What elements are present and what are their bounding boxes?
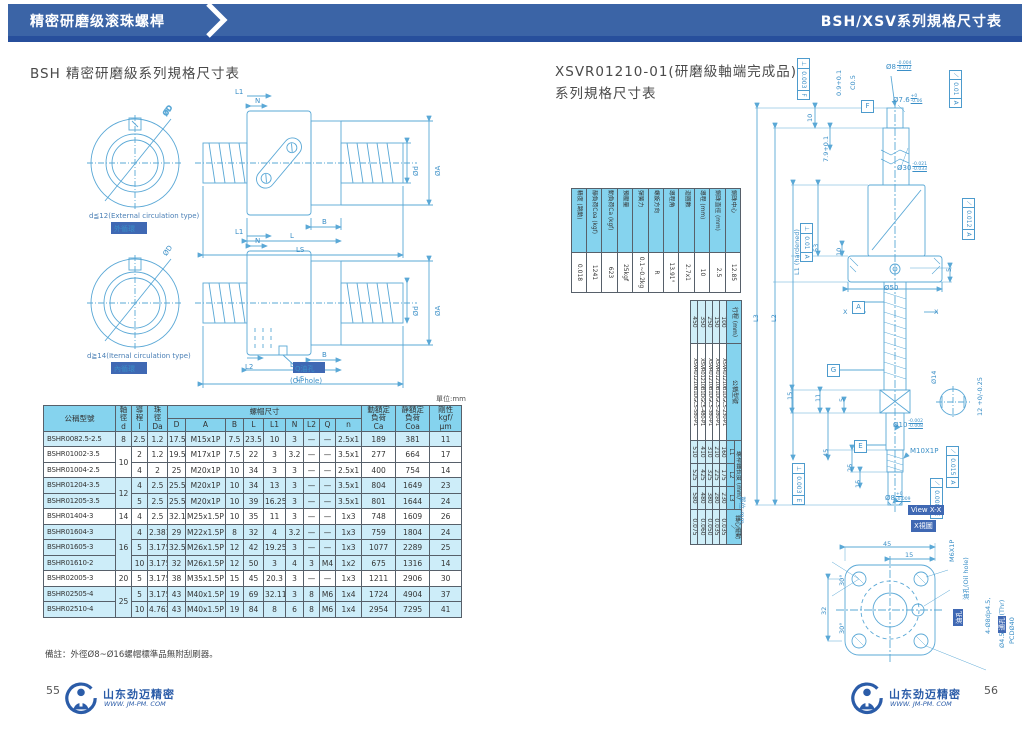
table-cell: 3 <box>264 555 286 571</box>
l3-cell: 280 <box>712 487 719 510</box>
table-cell: 8 <box>264 602 286 618</box>
col-header-B: B <box>226 418 244 431</box>
table-cell: 20.3 <box>264 571 286 587</box>
table-cell: 3 <box>286 431 304 447</box>
gdt-symbol: ⟋ <box>950 71 961 80</box>
model-cell: XSVR01210B1DGC5-280-P1 <box>712 344 719 441</box>
table-cell: 1x3 <box>336 509 362 525</box>
table-cell: 3 <box>264 447 286 463</box>
table-cell: 277 <box>362 447 396 463</box>
table-cell: 1x4 <box>336 586 362 602</box>
table-cell: 3.175 <box>148 571 168 587</box>
dim-flange-32: 32 <box>820 607 828 615</box>
header-left-tab: 精密研磨级滚珠螺桿 <box>30 11 165 31</box>
l1-cell: 410 <box>698 441 705 464</box>
dim-10-flange: 10 <box>835 248 843 256</box>
table-cell: M20x1P <box>186 493 226 509</box>
dim-main: Ø8 <box>886 63 896 71</box>
svg-text:(Oil hole): (Oil hole) <box>290 377 322 385</box>
table-cell: M15x1P <box>186 431 226 447</box>
table-row: BSHR01604-31642.38129M22x1.5P83243.2——1x… <box>44 524 462 540</box>
table-cell: M40x1.5P <box>186 602 226 618</box>
table-cell: — <box>320 571 336 587</box>
table-cell: 24 <box>430 493 462 509</box>
table-cell: 801 <box>362 493 396 509</box>
spec-row: 彈簧力0.1~0.2kg <box>633 189 648 293</box>
table-cell: 32 <box>244 524 264 540</box>
svg-text:B: B <box>322 218 327 226</box>
table-cell: — <box>304 493 320 509</box>
table-cell: M4 <box>320 555 336 571</box>
dim-chamfer: 0.9+0.1 <box>835 70 843 96</box>
datum-F: F <box>861 100 874 113</box>
datum-G: G <box>827 364 840 377</box>
table-cell: 4 <box>132 524 148 540</box>
dim-main: Ø10 <box>893 421 907 429</box>
gdt-value: 0.015 <box>947 456 958 478</box>
table-cell: 4 <box>132 462 148 478</box>
spec-value: 2.7x1 <box>679 253 694 293</box>
ball-nut-diagrams: ØD <box>85 88 475 408</box>
col-header-model: 公稱型號 <box>44 406 116 432</box>
section-x-right: X <box>934 308 938 316</box>
l2-cell: 175 <box>720 464 727 487</box>
table-row: BSHR01610-2103.17532M26x1.5P1250343M41x2… <box>44 555 462 571</box>
shaft-dia-cell: 8 <box>116 431 132 447</box>
spec-row: 動負荷Ca (kgf)623 <box>602 189 617 293</box>
table-cell: 8 <box>226 524 244 540</box>
table-cell: 1724 <box>362 586 396 602</box>
company-url: WWW. JM-PM. COM <box>104 700 166 708</box>
table-cell: 754 <box>396 462 430 478</box>
col-header-A: A <box>186 418 226 431</box>
svg-text:內循環: 內循環 <box>114 364 135 373</box>
col-header-model: 公稱型號 <box>727 344 742 441</box>
model-cell: XSVR01210B1DGC5-380-P1 <box>705 344 712 441</box>
table-cell: 1316 <box>396 555 430 571</box>
gdt-frame-perp-F: ⊥0.003F <box>797 58 810 100</box>
dim-53: 53 <box>812 244 820 252</box>
table-cell: 39 <box>244 493 264 509</box>
l2-cell: 325 <box>705 464 712 487</box>
svg-text:LS: LS <box>296 375 305 383</box>
table-cell: 3 <box>286 586 304 602</box>
table-cell: — <box>320 462 336 478</box>
table-cell: M35x1.5P <box>186 571 226 587</box>
stroke-cell: 150 <box>712 301 719 344</box>
table-cell: 10 <box>226 509 244 525</box>
table-cell: 69 <box>244 586 264 602</box>
table-cell: 10 <box>132 602 148 618</box>
table-cell: 2954 <box>362 602 396 618</box>
col-header-D: D <box>168 418 186 431</box>
company-logo-icon <box>64 682 98 716</box>
col-header-ball-dia: 珠 徑 Da <box>148 406 168 432</box>
label-part: (Thr) <box>998 600 1006 616</box>
table-cell: 14 <box>430 555 462 571</box>
svg-text:d≧14(Iternal circulation type): d≧14(Iternal circulation type) <box>87 352 191 360</box>
label-part: Ø4.5 <box>998 633 1006 648</box>
table-cell: 1.2 <box>148 431 168 447</box>
table-cell: 10 <box>226 478 244 494</box>
runout-cell: 0.035 <box>712 510 719 545</box>
gdt-value: 0.003 <box>798 69 809 91</box>
table-cell: M20x1P <box>186 462 226 478</box>
table-cell: M6 <box>320 602 336 618</box>
shaft-dia-cell: 25 <box>116 586 132 617</box>
col-header-rigidity: 剛性 kgf/ μm <box>430 406 462 432</box>
table-cell: 19.5 <box>168 447 186 463</box>
dim-5b: 5 <box>838 398 846 402</box>
dim-main: Ø8 <box>885 494 895 502</box>
label-oil-hole-highlight: 油孔 <box>953 609 963 626</box>
table-cell: 1x3 <box>336 524 362 540</box>
table-cell: M26x1.5P <box>186 555 226 571</box>
l1-cell: 210 <box>712 441 719 464</box>
dim-25: 25 <box>846 464 854 472</box>
table-cell: 2.5 <box>148 509 168 525</box>
table-cell: 4904 <box>396 586 430 602</box>
table-cell: — <box>320 493 336 509</box>
table-cell: 1.2 <box>148 447 168 463</box>
table-cell: — <box>304 478 320 494</box>
table-cell: 25.5 <box>168 478 186 494</box>
svg-text:ØA: ØA <box>434 165 442 176</box>
table-cell: 12 <box>226 555 244 571</box>
spec-value: 12.85 <box>725 253 740 293</box>
table-cell: 3 <box>286 493 304 509</box>
table-cell: 32.5 <box>168 540 186 556</box>
tol-lower: -0.012 <box>897 67 912 72</box>
table-cell: 2.5 <box>148 478 168 494</box>
svg-text:L: L <box>290 232 294 240</box>
gdt-value: 0.01 <box>801 234 812 252</box>
table-cell: 19.25 <box>264 540 286 556</box>
spec-label: 迴圈數 <box>679 189 694 253</box>
table-row: BSHR02505-42553.17543M40x1.5P196932.1138… <box>44 586 462 602</box>
spec-row: 精度 (跳動)0.018 <box>571 189 586 293</box>
dim-L1-hardened: L1 (hardened) <box>793 229 801 275</box>
table-cell: 43 <box>168 602 186 618</box>
gdt-value: 0.012 <box>963 208 974 230</box>
table-cell: 3 <box>304 555 320 571</box>
table-cell: 8 <box>304 586 320 602</box>
table-cell: 23 <box>430 478 462 494</box>
svg-text:N: N <box>255 97 260 105</box>
table-cell: 664 <box>396 447 430 463</box>
svg-text:ØD: ØD <box>161 104 174 118</box>
table-cell: M22x1.5P <box>186 524 226 540</box>
model-cell: BSHR01604-3 <box>44 524 116 540</box>
l3-cell: 230 <box>720 487 727 510</box>
label-pcd: PCDØ40 <box>1008 617 1016 644</box>
table-cell: 3.5x1 <box>336 478 362 494</box>
table-cell: 17.5 <box>168 431 186 447</box>
table-cell: 19 <box>226 602 244 618</box>
stroke-cell: 100 <box>720 301 727 344</box>
tol-lower: -0.008 <box>908 425 923 430</box>
table-cell: 4 <box>286 555 304 571</box>
table-row: BSHR02005-32053.17538M35x1.5P154520.33——… <box>44 571 462 587</box>
table-cell: 8 <box>304 602 320 618</box>
table-row: BSHR01204-3.51242.525.5M20x1P1034133——3.… <box>44 478 462 494</box>
svg-text:外循環: 外循環 <box>114 224 135 233</box>
model-cell: BSHR01610-2 <box>44 555 116 571</box>
view-title-zh: X視圖 <box>911 520 936 532</box>
shaft-dia-cell: 14 <box>116 509 132 525</box>
table-cell: 15 <box>226 571 244 587</box>
dim-10-top: 10 <box>806 114 814 122</box>
table-cell: 5 <box>132 571 148 587</box>
table-cell: 4 <box>132 509 148 525</box>
table-cell: 1644 <box>396 493 430 509</box>
gdt-frame-runout-A2: ⟋0.012A <box>962 198 975 240</box>
dim-L2: L2 <box>770 314 778 322</box>
spec-value: 13.91° <box>664 253 679 293</box>
spec-value: 0.1~0.2kg <box>633 253 648 293</box>
company-url: WWW. JM-PM. COM <box>890 700 952 708</box>
col-header-L1: L1 <box>264 418 286 431</box>
unit-note-left: 單位:mm <box>436 394 466 404</box>
svg-text:L1: L1 <box>235 228 243 236</box>
table-cell: 5 <box>132 540 148 556</box>
svg-text:Ød: Ød <box>412 306 420 316</box>
table-cell: 1649 <box>396 478 430 494</box>
table-cell: 37 <box>430 586 462 602</box>
page-number-right: 56 <box>984 684 998 697</box>
table-cell: M40x1.5P <box>186 586 226 602</box>
gdt-symbol: ⊥ <box>798 59 809 69</box>
gdt-frame-perp-A: ⊥0.01A <box>800 223 813 262</box>
table-cell: 804 <box>362 478 396 494</box>
table-cell: 24 <box>430 524 462 540</box>
model-cell: XSVR01210B1DGC5-480-P1 <box>698 344 705 441</box>
table-cell: 4 <box>132 478 148 494</box>
table-cell: 3.5x1 <box>336 493 362 509</box>
gdt-value: 0.003 <box>793 474 804 496</box>
dim-c05: C0.5 <box>849 75 857 90</box>
table-cell: 16.25 <box>264 493 286 509</box>
svg-text:ØD: ØD <box>161 244 174 258</box>
l1-cell: 160 <box>720 441 727 464</box>
table-row: BSHR0082.5-2.582.51.217.5M15x1P7.523.510… <box>44 431 462 447</box>
table-cell: 1804 <box>396 524 430 540</box>
spec-row: 迴圈數2.7x1 <box>679 189 694 293</box>
table-cell: 3.5x1 <box>336 447 362 463</box>
spec-row: 鋼珠直徑 (mm)2.5 <box>710 189 725 293</box>
table-cell: 400 <box>362 462 396 478</box>
model-cell: BSHR01205-3.5 <box>44 493 116 509</box>
label-part-highlight: 通孔 <box>998 616 1006 633</box>
model-cell: XSVR01210B1DGC5-580-P1 <box>690 344 697 441</box>
gdt-symbol: ⟋ <box>931 479 942 488</box>
table-cell: — <box>304 571 320 587</box>
model-row: 250XSVR01210B1DGC5-380-P13103253800.050 <box>705 301 712 545</box>
l1-cell: 510 <box>690 441 697 464</box>
table-cell: — <box>304 462 320 478</box>
dim-d8-bottom: Ø8+0-0.009 <box>885 493 910 503</box>
l2-cell: 225 <box>712 464 719 487</box>
unit-note-right: 單位:mm <box>738 496 748 524</box>
table-cell: 34 <box>244 478 264 494</box>
model-cell: XSVR01210B1DGC5-230-P1 <box>720 344 727 441</box>
table-cell: — <box>320 478 336 494</box>
model-cell: BSHR0082.5-2.5 <box>44 431 116 447</box>
spec-label: 導程 (mm) <box>694 189 709 253</box>
table-cell: 2.5x1 <box>336 431 362 447</box>
table-cell: 22 <box>244 447 264 463</box>
runout-cell: 0.075 <box>690 510 697 545</box>
table-cell: 5 <box>132 586 148 602</box>
l3-cell: 380 <box>705 487 712 510</box>
gdt-symbol: ⟋ <box>963 199 974 208</box>
gdt-frame-runout-A1: ⟋0.01A <box>949 70 962 108</box>
spec-row: 導程角13.91° <box>664 189 679 293</box>
spec-label: 鋼珠中心 <box>725 189 740 253</box>
spec-label: 靜負荷Coa (kgf) <box>587 189 602 253</box>
header-band-stripe <box>8 36 1022 42</box>
dim-11: 11 <box>814 394 822 402</box>
svg-text:ØA: ØA <box>434 305 442 316</box>
dim-main: Ø30 <box>897 164 911 172</box>
runout-cell: 0.035 <box>720 510 727 545</box>
spec-row: 導程 (mm)10 <box>694 189 709 293</box>
table-cell: 11 <box>264 509 286 525</box>
table-cell: 3.2 <box>286 447 304 463</box>
spec-label: 精度 (跳動) <box>571 189 586 253</box>
col-header-shaft-dia: 軸 徑 d <box>116 406 132 432</box>
gdt-datum-ref: A <box>963 230 974 238</box>
table-cell: 32.11 <box>264 586 286 602</box>
col-header-Q: Q <box>320 418 336 431</box>
spec-label: 鋼珠直徑 (mm) <box>710 189 725 253</box>
table-cell: 3.175 <box>148 540 168 556</box>
gdt-datum-ref: E <box>793 496 804 504</box>
table-cell: — <box>320 540 336 556</box>
model-cell: BSHR02505-4 <box>44 586 116 602</box>
table-cell: 3.175 <box>148 586 168 602</box>
spec-label: 彈簧力 <box>633 189 648 253</box>
table-cell: 1077 <box>362 540 396 556</box>
table-cell: 3 <box>286 509 304 525</box>
table-cell: 3.2 <box>286 524 304 540</box>
dim-7-9: 7.9+0.1 <box>822 136 830 162</box>
table-cell: 19 <box>226 586 244 602</box>
dim-m10-thread: M10X1P <box>910 447 938 455</box>
model-cell: BSHR01004-2.5 <box>44 462 116 478</box>
col-header-L1: L1 <box>727 441 734 464</box>
label-counterbore: 4-Ø8dp4.5, <box>984 598 992 634</box>
tol-lower: -0.009 <box>896 498 911 503</box>
table-cell: M6 <box>320 586 336 602</box>
model-row: 350XSVR01210B1DGC5-480-P14104254800.060 <box>698 301 705 545</box>
tol-lower: -0.06 <box>911 100 923 105</box>
table-cell: 35 <box>244 509 264 525</box>
dim-15a: 15 <box>786 392 794 400</box>
dim-d8-top: Ø8-0.004-0.012 <box>886 62 911 72</box>
l3-cell: 480 <box>698 487 705 510</box>
xsv-spec-table-rotated: 鋼珠中心12.85鋼珠直徑 (mm)2.5導程 (mm)10迴圈數2.7x1導程… <box>560 188 741 292</box>
table-cell: 1x4 <box>336 602 362 618</box>
table-cell: 14 <box>430 462 462 478</box>
gdt-symbol: ⟋ <box>947 447 958 456</box>
table-row: BSHR01004-2.54225M20x1P103433——2.5x14007… <box>44 462 462 478</box>
table-cell: 17 <box>430 447 462 463</box>
col-header-static-load: 靜額定 負荷 Coa <box>396 406 430 432</box>
table-cell: 6 <box>286 602 304 618</box>
tol-lower: -0.033 <box>912 168 927 173</box>
dim-d50: Ø50 <box>884 284 898 292</box>
datum-E: E <box>854 440 867 453</box>
table-cell: — <box>320 431 336 447</box>
table-cell: 1211 <box>362 571 396 587</box>
label-m6-oilport: M6X1P <box>948 540 956 562</box>
table-cell: 748 <box>362 509 396 525</box>
table-cell: 2.5 <box>148 493 168 509</box>
table-cell: — <box>304 447 320 463</box>
dim-45: 45 <box>822 449 830 457</box>
gdt-datum-ref: A <box>947 478 958 486</box>
model-cell: BSHR01002-3.5 <box>44 447 116 463</box>
model-cell: BSHR02005-3 <box>44 571 116 587</box>
table-cell: 2.381 <box>148 524 168 540</box>
spec-value: 0.018 <box>571 253 586 293</box>
table-cell: 1609 <box>396 509 430 525</box>
gdt-value: 0.01 <box>950 80 961 98</box>
gdt-frame-runout-A3: ⟋0.015A <box>946 446 959 488</box>
table-cell: 3.175 <box>148 555 168 571</box>
shaft-dia-cell: 16 <box>116 524 132 571</box>
spec-row: 螺旋方向R <box>648 189 663 293</box>
table-cell: 23.5 <box>244 431 264 447</box>
table-cell: 13 <box>264 478 286 494</box>
dim-angle-30b: 30° <box>838 622 846 634</box>
l2-cell: 425 <box>698 464 705 487</box>
table-cell: 10 <box>226 493 244 509</box>
table-cell: 34 <box>244 462 264 478</box>
model-row: 450XSVR01210B1DGC5-580-P15105255800.075 <box>690 301 697 545</box>
table-cell: 1x2 <box>336 555 362 571</box>
col-header-N: N <box>286 418 304 431</box>
svg-text:N: N <box>255 237 260 245</box>
table-cell: 3 <box>264 462 286 478</box>
table-footnote: 備註：外徑Ø8~Ø16螺帽標準品無附刮刷器。 <box>45 648 218 660</box>
svg-text:L: L <box>290 361 294 369</box>
table-cell: 2.5x1 <box>336 462 362 478</box>
spec-row: 靜負荷Coa (kgf)1241 <box>587 189 602 293</box>
table-cell: 38 <box>168 571 186 587</box>
table-cell: 25.5 <box>168 493 186 509</box>
table-cell: 2.5 <box>132 431 148 447</box>
left-page-title: BSH 精密研磨級系列規格尺寸表 <box>30 62 240 82</box>
model-cell: BSHR01204-3.5 <box>44 478 116 494</box>
table-cell: 10 <box>226 462 244 478</box>
table-cell: 4.762 <box>148 602 168 618</box>
shaft-dia-cell: 20 <box>116 571 132 587</box>
runout-symbol-icon: ⟋ <box>728 511 733 543</box>
spec-label: 螺旋方向 <box>648 189 663 253</box>
table-cell: 45 <box>244 571 264 587</box>
table-cell: 3 <box>286 571 304 587</box>
table-cell: 4 <box>264 524 286 540</box>
table-cell: 50 <box>244 555 264 571</box>
table-cell: 7.5 <box>226 431 244 447</box>
table-row: BSHR01605-353.17532.5M26x1.5P124219.253—… <box>44 540 462 556</box>
table-cell: M17x1P <box>186 447 226 463</box>
table-cell: 381 <box>396 431 430 447</box>
table-cell: 2906 <box>396 571 430 587</box>
gdt-frame-perp-E: ⊥0.003E <box>792 463 805 505</box>
